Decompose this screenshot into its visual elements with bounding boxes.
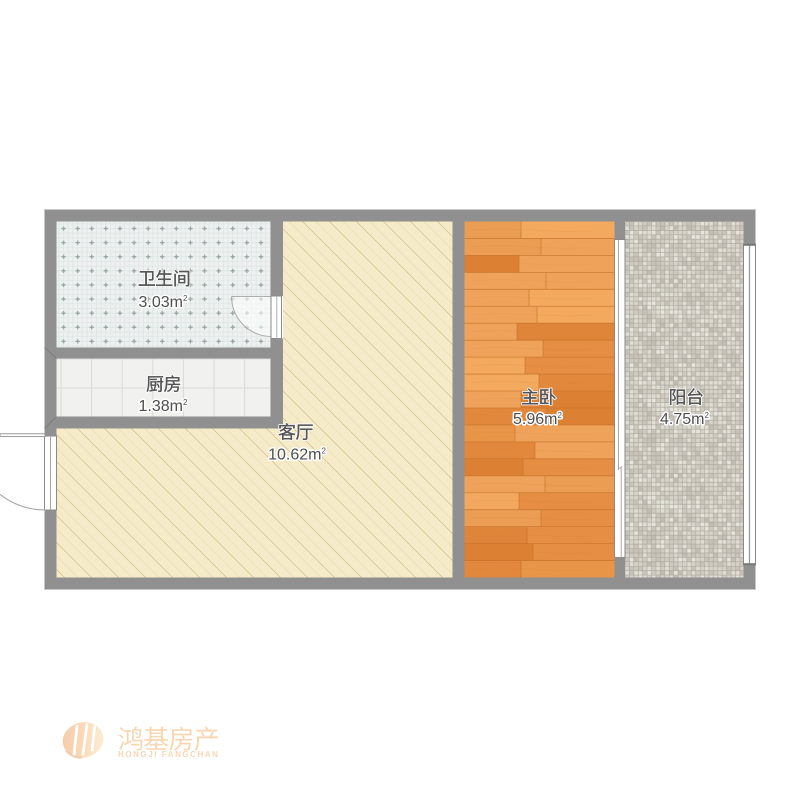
svg-text:10.62m2: 10.62m2 [268,447,326,464]
svg-text:HONGJI FANGCHAN: HONGJI FANGCHAN [118,750,219,759]
svg-text:1.38m2: 1.38m2 [139,398,188,415]
svg-text:4.75m2: 4.75m2 [660,411,709,428]
svg-text:5.96m2: 5.96m2 [513,411,562,428]
svg-text:3.03m2: 3.03m2 [139,294,188,311]
